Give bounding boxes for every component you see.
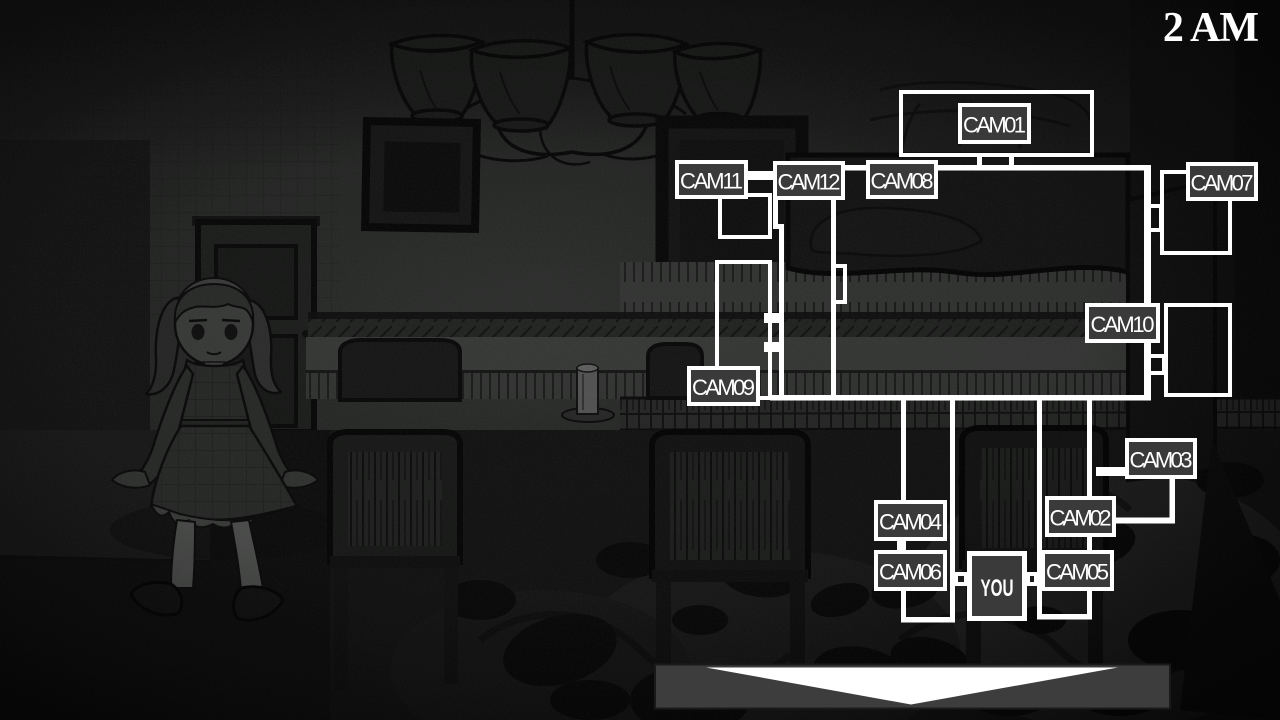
svg-text:CAM05: CAM05 — [1046, 560, 1109, 585]
svg-text:CAM03: CAM03 — [1130, 448, 1193, 473]
svg-text:CAM11: CAM11 — [680, 169, 743, 194]
svg-text:CAM09: CAM09 — [692, 375, 755, 400]
svg-text:CAM04: CAM04 — [879, 510, 942, 535]
svg-text:CAM06: CAM06 — [879, 560, 942, 585]
svg-text:CAM08: CAM08 — [871, 169, 934, 194]
svg-text:CAM02: CAM02 — [1050, 506, 1112, 531]
svg-text:CAM01: CAM01 — [963, 113, 1026, 138]
svg-text:YOU: YOU — [981, 575, 1014, 602]
svg-text:CAM12: CAM12 — [778, 170, 841, 195]
svg-text:CAM07: CAM07 — [1191, 171, 1254, 196]
svg-text:CAM10: CAM10 — [1091, 312, 1155, 337]
